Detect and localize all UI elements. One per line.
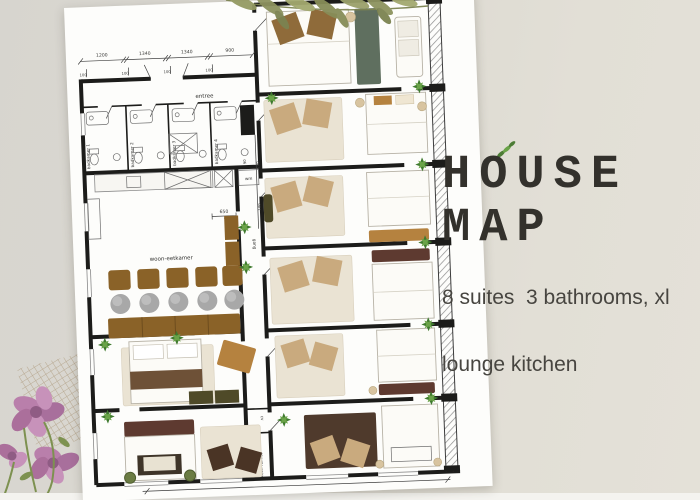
topiary-plant <box>184 470 195 481</box>
pillow <box>302 98 332 128</box>
dim-tick-3: 100 <box>163 69 171 74</box>
cabinet <box>263 194 273 222</box>
headboard <box>374 95 392 105</box>
cv-room: cv <box>260 416 265 421</box>
dim-top-1: 1200 <box>96 52 108 58</box>
page-title-line-1: HOUSE <box>442 150 694 203</box>
side-table <box>376 460 384 468</box>
pillow <box>167 343 198 358</box>
dim-tick-4: 100 <box>205 67 213 72</box>
poster-canvas: 1200 1340 1340 900 100 100 100 100 650 2… <box>0 0 700 500</box>
mini-sofa <box>137 454 182 476</box>
suite-6 <box>304 404 442 471</box>
subtitle: 8 suites 3 bathrooms, xl lounge kitchen <box>442 281 694 381</box>
label-badkamer-3: badkamer 3 <box>171 140 177 166</box>
bench <box>369 228 429 242</box>
dim-top-4: 900 <box>225 47 234 53</box>
title-block: HOUSE MAP 8 suites 3 bathrooms, xl loung… <box>442 150 694 381</box>
bathroom-1: badkamer 1 <box>84 111 121 169</box>
dim-top-2: 1340 <box>139 51 151 57</box>
subtitle-line-1: 8 suites 3 bathrooms, xl <box>442 286 670 309</box>
washing-machine: wm <box>238 170 259 186</box>
suite-7 <box>121 337 259 407</box>
topiary-plant <box>124 472 135 483</box>
dim-650: 650 <box>219 209 228 215</box>
palm-leaf-decoration <box>222 0 432 38</box>
bench <box>372 248 430 262</box>
label-badkamer-1: badkamer 1 <box>85 144 91 170</box>
cabinet <box>189 391 213 405</box>
sideboard <box>225 241 240 266</box>
side-table <box>369 386 377 394</box>
label-cv: cv <box>260 416 265 421</box>
dim-200: 200 <box>255 161 260 169</box>
floorplan-paper: 1200 1340 1340 900 100 100 100 100 650 2… <box>64 0 493 500</box>
dim-90: 90 <box>242 159 247 165</box>
suite-3 <box>263 170 432 246</box>
kitchen-counter <box>86 170 234 240</box>
label-entree: entree <box>195 93 214 100</box>
side-table <box>434 458 442 466</box>
pillow <box>312 256 342 286</box>
suite-5 <box>275 328 437 399</box>
cabinet <box>215 390 239 404</box>
subtitle-line-2: lounge kitchen <box>442 353 577 376</box>
side-table <box>355 98 364 107</box>
pillow <box>133 344 164 359</box>
sideboard <box>224 215 239 240</box>
label-badkamer-4: badkamer 4 <box>213 139 219 165</box>
dim-tick-2: 100 <box>121 71 129 76</box>
suite-2 <box>264 92 429 162</box>
dim-100: 100 <box>257 203 262 211</box>
side-table <box>417 102 426 111</box>
label-woon-eetkamer: woon-eetkamer <box>150 255 194 263</box>
bathroom-2: badkamer 2 <box>128 109 165 167</box>
bench <box>379 382 435 395</box>
throw-blanket <box>130 369 203 390</box>
dim-top-3: 1340 <box>181 49 193 55</box>
closet <box>240 105 255 136</box>
dim-tick-1: 100 <box>79 72 87 77</box>
rug <box>275 334 345 399</box>
plant-icon <box>97 337 113 353</box>
rug-angled <box>217 339 257 373</box>
dining-area <box>106 265 246 338</box>
suite-8 <box>122 417 263 484</box>
suite-4 <box>270 248 435 324</box>
label-wm: wm <box>245 176 253 181</box>
page-title-line-2: MAP <box>442 203 694 256</box>
label-gang: gang <box>252 239 257 250</box>
plant-icon <box>276 412 292 428</box>
dimension-line-top: 1200 1340 1340 900 100 100 100 100 <box>78 47 256 78</box>
label-badkamer-2: badkamer 2 <box>129 142 135 168</box>
floorplan-svg: 1200 1340 1340 900 100 100 100 100 650 2… <box>64 0 493 500</box>
bathroom-3: badkamer 3 <box>170 108 207 166</box>
bed <box>382 404 440 468</box>
